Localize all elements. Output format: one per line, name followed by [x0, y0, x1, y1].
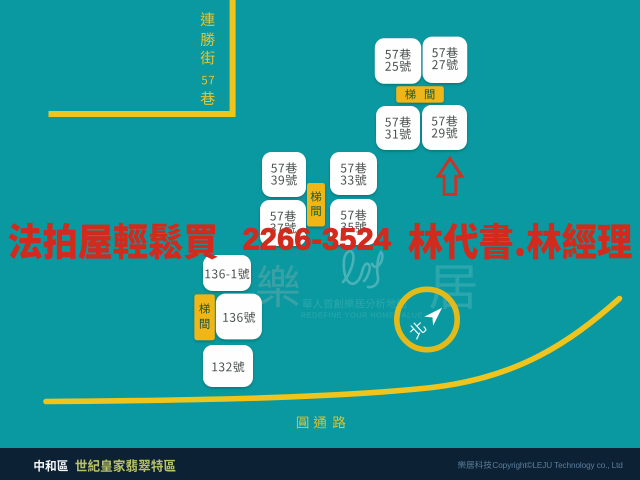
svg-text:2266-3524: 2266-3524	[243, 222, 392, 256]
svg-text:Copyright©LEJU Technology co.,: Copyright©LEJU Technology co., Ltd	[492, 461, 623, 470]
svg-text:REDEFINE YOUR HOME VALUE: REDEFINE YOUR HOME VALUE	[301, 310, 423, 319]
